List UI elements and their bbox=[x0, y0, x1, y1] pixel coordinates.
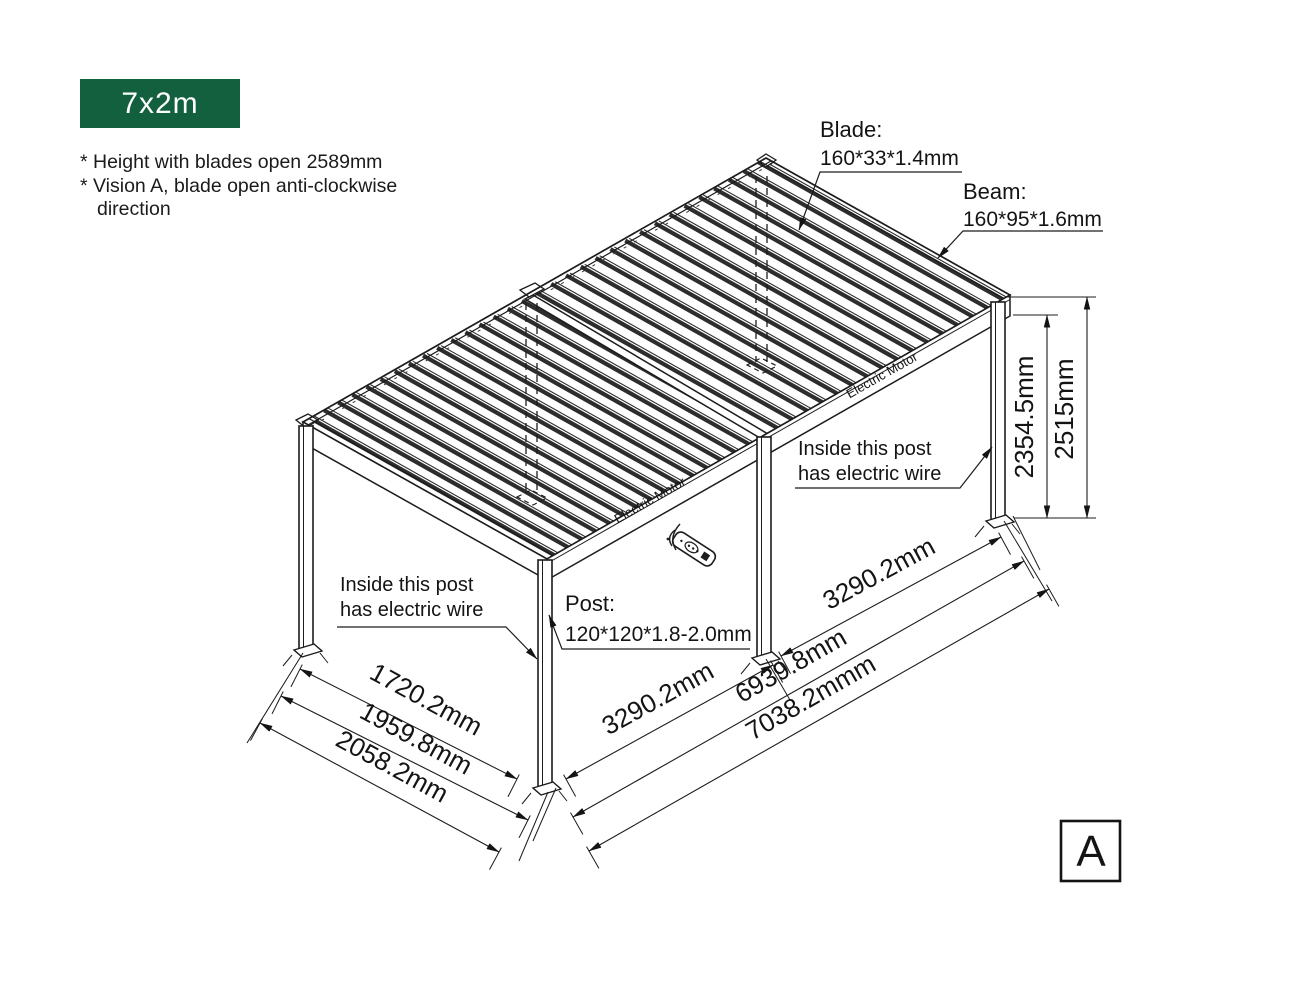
remote-control-icon bbox=[667, 524, 718, 568]
diagram-canvas: Blade: 160*33*1.4mm Beam: 160*95*1.6mm P… bbox=[0, 0, 1300, 1000]
dim-post-height: 2354.5mm bbox=[1009, 356, 1039, 479]
dim-total-height: 2515mm bbox=[1049, 358, 1079, 459]
post-callout-spec: 120*120*1.8-2.0mm bbox=[565, 623, 752, 646]
post-callout-title: Post: bbox=[565, 591, 615, 616]
wire-note-right-line2: has electric wire bbox=[798, 463, 941, 485]
pergola-dimension-diagram: 7x2m * Height with blades open 2589mm * … bbox=[0, 0, 1300, 1000]
beam-callout-spec: 160*95*1.6mm bbox=[963, 208, 1102, 231]
blade-callout-title: Blade: bbox=[820, 117, 882, 142]
wire-note-left-line1: Inside this post bbox=[340, 574, 474, 596]
view-marker-label: A bbox=[1076, 827, 1106, 876]
wire-note-left-line2: has electric wire bbox=[340, 599, 483, 621]
wire-note-right-line1: Inside this post bbox=[798, 438, 932, 460]
electric-motor-label-right: Electric Motor bbox=[844, 349, 921, 402]
beam-callout-title: Beam: bbox=[963, 179, 1027, 204]
remote-icon bbox=[670, 530, 717, 568]
blade-callout-spec: 160*33*1.4mm bbox=[820, 147, 959, 170]
